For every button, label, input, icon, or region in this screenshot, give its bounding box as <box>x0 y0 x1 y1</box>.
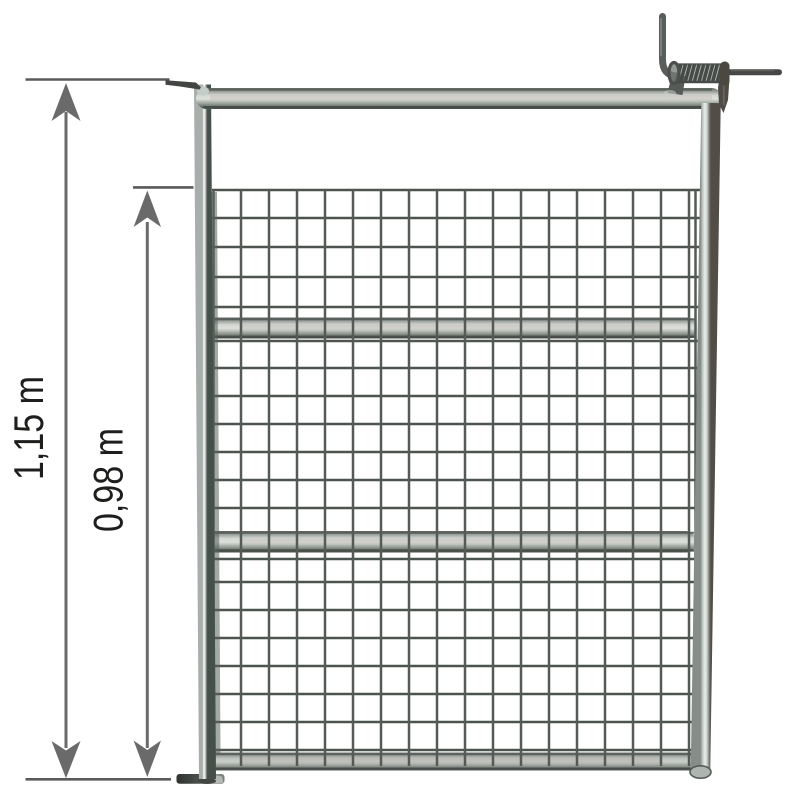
svg-text:0,98 m: 0,98 m <box>85 428 132 532</box>
svg-text:1,15 m: 1,15 m <box>5 376 52 480</box>
